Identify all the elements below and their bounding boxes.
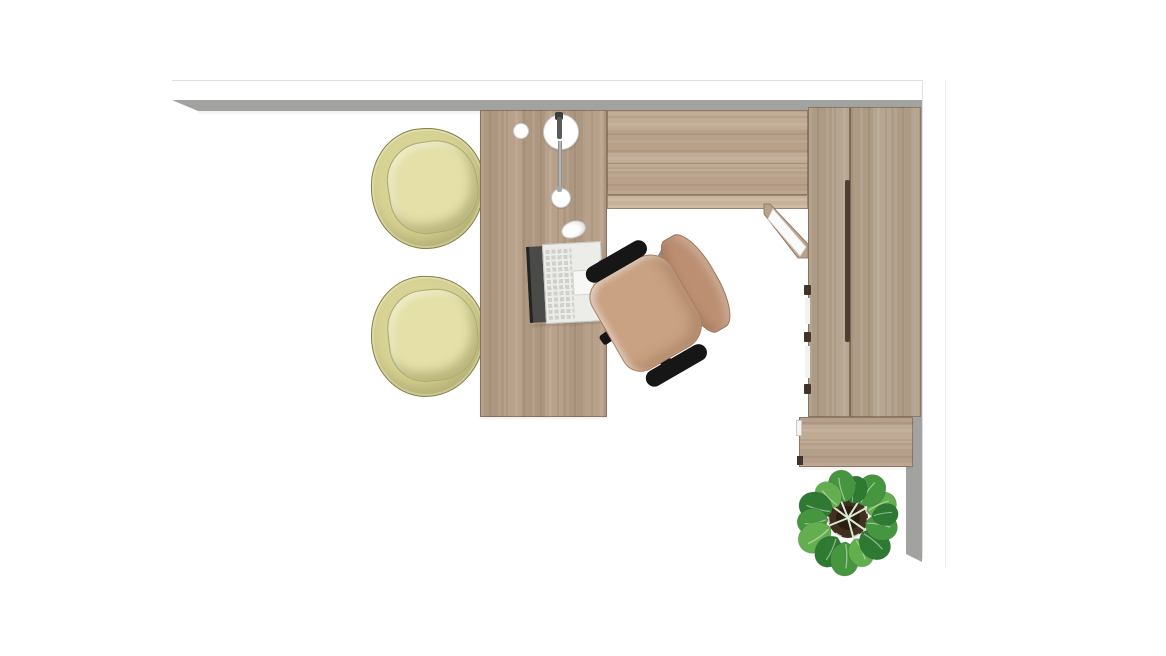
wardrobe-cabinet[interactable] (808, 107, 921, 417)
desk-lamp-stem (558, 141, 562, 190)
cabinet-hinge-strip (805, 346, 810, 378)
desk-return[interactable] (607, 110, 808, 195)
guest-chair-2[interactable] (370, 275, 486, 398)
desk-return-seam (608, 163, 807, 164)
laptop-keyboard (545, 248, 575, 320)
desk-end-panel[interactable]: Desk end support panel (762, 200, 812, 264)
end-panel-face (768, 209, 806, 256)
low-cabinet-edge (796, 420, 802, 436)
desk-lamp-joint (557, 186, 562, 192)
cable-grommet[interactable] (513, 123, 529, 139)
cabinet-handle-groove[interactable] (845, 180, 850, 342)
cabinet-hinge (804, 285, 811, 295)
guest-chair-1[interactable] (369, 126, 487, 251)
cabinet-hinge (804, 384, 811, 394)
cabinet-hinge-strip (805, 298, 810, 324)
potted-plant[interactable]: Potted plant (790, 458, 916, 590)
floor-plan-canvas: Desk end support panel (0, 0, 1166, 656)
wall-right[interactable] (922, 80, 946, 568)
desk-lamp-arm (557, 117, 562, 139)
wall-top[interactable] (172, 80, 944, 101)
cabinet-hinge (804, 332, 811, 342)
